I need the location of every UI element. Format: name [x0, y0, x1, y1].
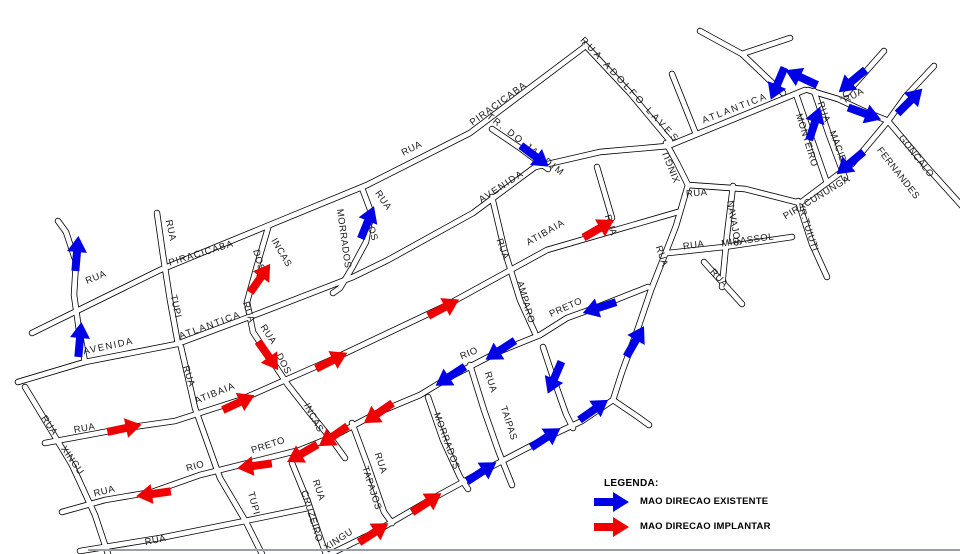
street-label: RUA: [163, 219, 178, 243]
direction-arrow-implant: [312, 344, 352, 378]
street-surface-connector-nw: [672, 74, 696, 134]
street-label: TUPI: [245, 491, 262, 517]
street-label: MORRADOS: [431, 411, 462, 471]
street-surface-rua-v-mid: [597, 167, 612, 218]
street-surface-avenida-atlantica: [18, 90, 805, 382]
direction-arrow-implant: [407, 485, 447, 521]
street-label: RUA: [482, 370, 499, 394]
street-label: INCAS: [301, 401, 326, 434]
direction-arrow-existing: [580, 293, 619, 323]
street-surface-goncalo-fernandes: [888, 66, 960, 206]
street-label: RUA ADOLFO LAVES: [578, 35, 682, 146]
street-piracununga: [688, 121, 888, 203]
street-label: TAIPAS: [498, 405, 519, 442]
direction-arrow-existing: [526, 420, 566, 456]
street-surface-t2-top: [742, 38, 790, 54]
street-label: INCAS: [269, 236, 294, 269]
drawing-border-line: [88, 549, 960, 551]
street-avenida-atlantica: [18, 90, 805, 382]
street-surface-rua-xingu-west: [25, 387, 108, 554]
street-label: ▿: [839, 95, 843, 102]
street-label: RUA: [686, 187, 709, 200]
legend-label-implant: MAO DIRECAO IMPLANTAR: [640, 521, 771, 532]
map-canvas: RUAPIRACICABARUAPIRACICABAAVENIDAATLANTI…: [0, 0, 960, 554]
direction-arrow-implant: [358, 395, 398, 431]
street-label: RUA: [144, 533, 168, 548]
street-label: R.TUIUTI: [796, 208, 820, 253]
direction-arrow-existing: [539, 358, 571, 398]
street-label: RUA: [493, 237, 511, 261]
legend-title: LEGENDA:: [604, 478, 853, 489]
red-arrow-icon: [593, 516, 633, 538]
street-label: AMPARO: [514, 280, 537, 325]
street-map-drawing: RUAPIRACICABARUAPIRACICABAAVENIDAATLANTI…: [0, 0, 960, 554]
legend-label-existing: MAO DIRECAO EXISTENTE: [640, 496, 768, 507]
street-surface-rua-bottom: [80, 508, 308, 551]
blue-arrow-icon: [593, 491, 633, 513]
legend: LEGENDA: MAO DIRECAO EXISTENTE MAO DIREC…: [593, 478, 853, 539]
street-surface-stub-y: [613, 400, 649, 425]
street-surface-piracununga: [688, 121, 888, 203]
street-label: RUA: [84, 268, 108, 286]
street-label: PIRACICABA: [167, 238, 235, 268]
direction-arrow-existing: [480, 332, 520, 368]
legend-item-existing: MAO DIRECAO EXISTENTE: [593, 489, 853, 514]
legend-item-implant: MAO DIRECAO IMPLANTAR: [593, 514, 853, 539]
street-label: RUA: [372, 189, 393, 213]
street-label: RUA: [180, 364, 197, 388]
street-label: AVENIDA: [477, 168, 526, 205]
street-label: RUA: [372, 451, 389, 475]
street-label: MORRADOS: [334, 208, 353, 269]
